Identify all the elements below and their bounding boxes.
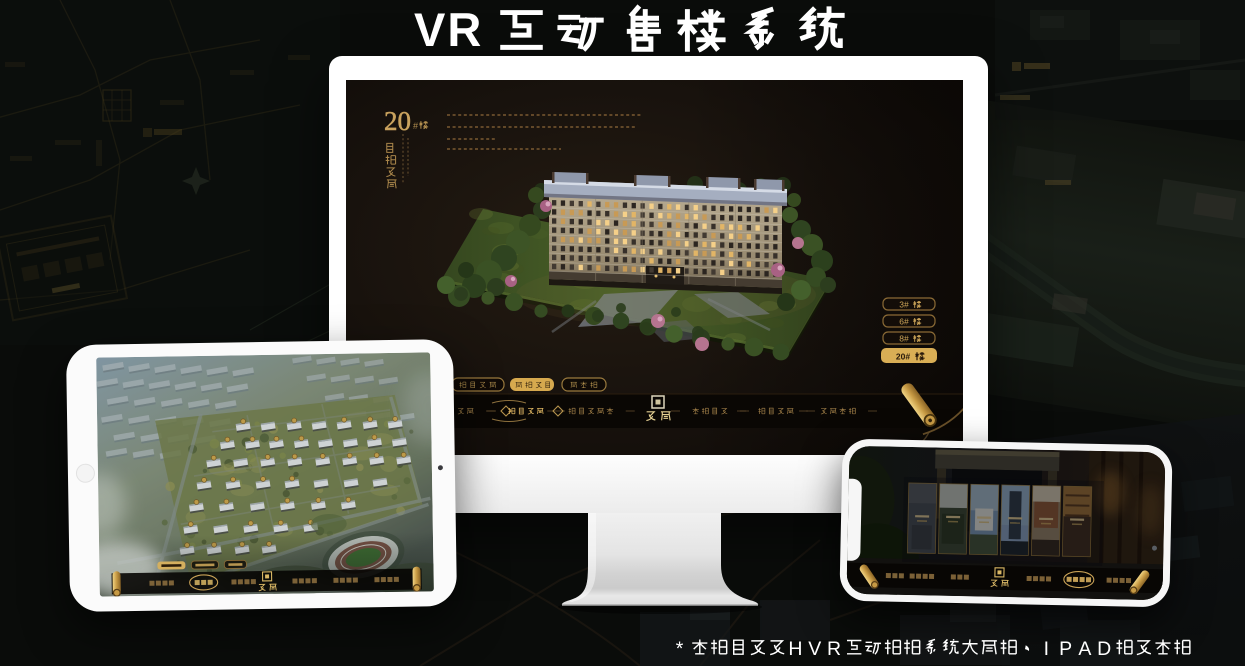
svg-text:*: *: [676, 638, 684, 660]
svg-text:3#: 3#: [899, 300, 909, 310]
svg-text:20#: 20#: [896, 352, 910, 362]
svg-text:I: I: [1044, 638, 1049, 660]
svg-text:D: D: [1097, 638, 1111, 660]
svg-text:VR: VR: [414, 3, 483, 56]
svg-text:R: R: [827, 638, 841, 660]
svg-text:H: H: [788, 638, 802, 660]
svg-text:6#: 6#: [899, 317, 909, 327]
svg-text:20: 20: [384, 106, 411, 136]
svg-text:V: V: [808, 638, 821, 660]
svg-text:P: P: [1059, 638, 1072, 660]
svg-text:A: A: [1078, 638, 1091, 660]
svg-text:#: #: [413, 121, 418, 131]
svg-text:8#: 8#: [899, 334, 909, 344]
